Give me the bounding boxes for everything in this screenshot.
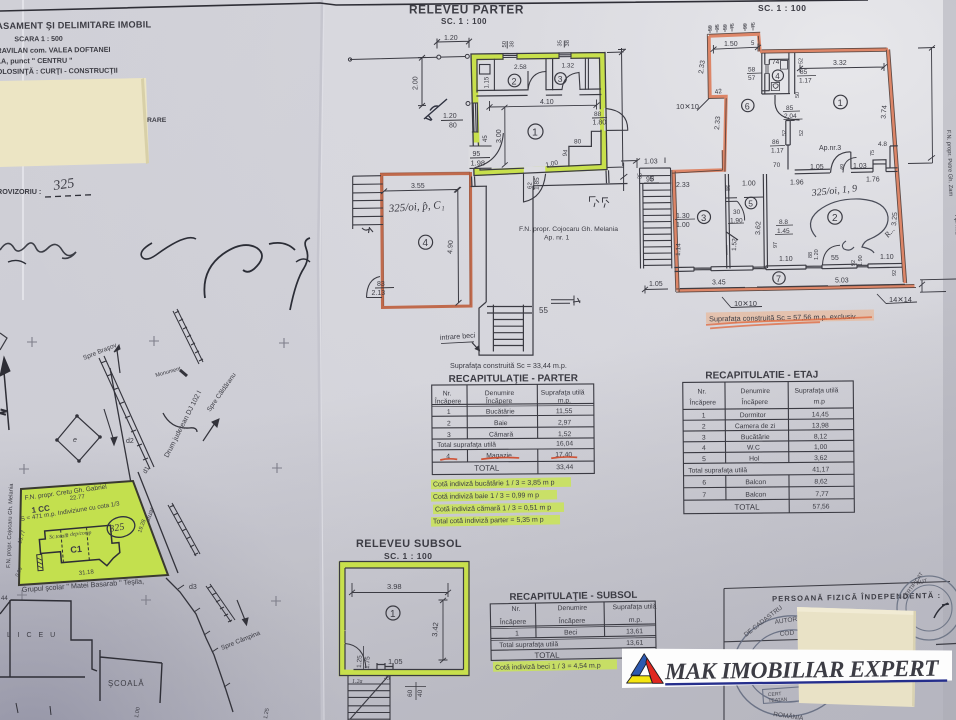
svg-text:1.80: 1.80 bbox=[593, 120, 607, 127]
svg-text:5: 5 bbox=[702, 456, 706, 463]
svg-text:75: 75 bbox=[870, 150, 876, 156]
svg-text:86: 86 bbox=[772, 139, 780, 146]
svg-text:1.32: 1.32 bbox=[562, 63, 575, 70]
svg-text:Suprafaţa utilă: Suprafaţa utilă bbox=[541, 389, 585, 396]
svg-text:16,04: 16,04 bbox=[556, 441, 573, 448]
svg-text:1: 1 bbox=[390, 609, 396, 620]
svg-text:1.10: 1.10 bbox=[779, 256, 793, 263]
svg-text:1: 1 bbox=[532, 127, 538, 139]
svg-text:Dormitor: Dormitor bbox=[740, 412, 767, 419]
svg-text:1: 1 bbox=[838, 98, 843, 109]
svg-text:m.p.: m.p. bbox=[558, 398, 571, 405]
svg-text:Nr.: Nr. bbox=[443, 390, 452, 397]
svg-text:m.p.: m.p. bbox=[629, 617, 642, 624]
svg-text:3,62: 3,62 bbox=[814, 455, 828, 462]
svg-text:m.p: m.p bbox=[814, 398, 826, 405]
svg-text:2,97: 2,97 bbox=[558, 420, 571, 427]
svg-text:10✕10: 10✕10 bbox=[676, 102, 699, 111]
svg-text:3: 3 bbox=[558, 74, 563, 84]
svg-text:ŞCOALĂ: ŞCOALĂ bbox=[108, 679, 144, 688]
svg-text:3.25: 3.25 bbox=[891, 212, 899, 226]
svg-text:1.75: 1.75 bbox=[364, 656, 372, 669]
svg-text:1,00: 1,00 bbox=[814, 444, 828, 451]
svg-text:SC. 1 : 100: SC. 1 : 100 bbox=[384, 551, 433, 561]
svg-text:Balcon: Balcon bbox=[745, 492, 766, 499]
svg-text:1.17: 1.17 bbox=[771, 148, 784, 155]
svg-text:Încăpere: Încăpere bbox=[741, 397, 769, 406]
svg-text:Baie: Baie bbox=[494, 420, 508, 427]
svg-text:2.33: 2.33 bbox=[714, 116, 722, 130]
svg-text:7: 7 bbox=[702, 492, 706, 499]
svg-text:1.15: 1.15 bbox=[485, 76, 491, 88]
svg-text:40: 40 bbox=[417, 689, 424, 697]
svg-text:59: 59 bbox=[723, 24, 729, 30]
svg-text:6: 6 bbox=[745, 101, 750, 111]
svg-text:1.20: 1.20 bbox=[443, 113, 457, 120]
svg-text:80: 80 bbox=[449, 123, 457, 130]
svg-text:3: 3 bbox=[701, 213, 706, 224]
svg-text:1.14: 1.14 bbox=[675, 243, 682, 256]
svg-text:3.45: 3.45 bbox=[712, 280, 726, 287]
svg-text:1: 1 bbox=[515, 630, 519, 637]
svg-text:1.96: 1.96 bbox=[790, 180, 804, 187]
svg-text:35: 35 bbox=[638, 173, 644, 179]
svg-text:TOTAL: TOTAL bbox=[534, 651, 560, 660]
svg-text:Balcon: Balcon bbox=[745, 479, 766, 486]
svg-text:35: 35 bbox=[558, 40, 564, 46]
svg-text:88: 88 bbox=[594, 111, 602, 118]
svg-text:Bucătărie: Bucătărie bbox=[486, 408, 515, 415]
svg-text:SCARA 1 : 500: SCARA 1 : 500 bbox=[14, 36, 63, 44]
svg-text:3.62: 3.62 bbox=[755, 221, 762, 235]
svg-text:RARE: RARE bbox=[147, 117, 167, 124]
svg-text:13,61: 13,61 bbox=[626, 628, 643, 635]
svg-text:2: 2 bbox=[832, 213, 838, 224]
svg-text:14,45: 14,45 bbox=[812, 411, 829, 418]
svg-text:49: 49 bbox=[840, 164, 846, 170]
svg-text:Denumire: Denumire bbox=[740, 388, 770, 395]
svg-text:Hol: Hol bbox=[749, 456, 760, 463]
svg-text:Nr.: Nr. bbox=[697, 389, 706, 396]
svg-text:Ap. nr. 1: Ap. nr. 1 bbox=[544, 235, 570, 242]
svg-text:1,52: 1,52 bbox=[558, 431, 571, 438]
svg-text:2: 2 bbox=[447, 420, 451, 427]
svg-text:1.17: 1.17 bbox=[799, 78, 812, 85]
svg-text:TOTAL: TOTAL bbox=[474, 464, 500, 473]
svg-text:80: 80 bbox=[574, 139, 582, 146]
svg-text:4: 4 bbox=[423, 238, 429, 249]
svg-text:55: 55 bbox=[650, 175, 656, 181]
svg-text:Suprafaţa utilă: Suprafaţa utilă bbox=[613, 603, 657, 611]
svg-text:5: 5 bbox=[748, 199, 753, 209]
svg-text:70: 70 bbox=[773, 162, 781, 169]
svg-text:Încăpere: Încăpere bbox=[485, 396, 513, 405]
svg-text:59: 59 bbox=[708, 25, 714, 31]
svg-text:Încăpere: Încăpere bbox=[689, 397, 717, 406]
svg-text:1.50: 1.50 bbox=[724, 41, 738, 48]
svg-text:1.90: 1.90 bbox=[858, 255, 864, 266]
svg-text:4: 4 bbox=[775, 72, 780, 81]
svg-text:Suprafaţa utilă: Suprafaţa utilă bbox=[794, 387, 838, 394]
svg-text:1.76: 1.76 bbox=[866, 177, 880, 184]
svg-text:1.98: 1.98 bbox=[471, 159, 486, 168]
svg-text:1.20: 1.20 bbox=[814, 249, 820, 260]
svg-text:Încăpere: Încăpere bbox=[434, 396, 462, 405]
svg-text:1.03: 1.03 bbox=[644, 159, 658, 166]
svg-text:55: 55 bbox=[831, 255, 839, 262]
svg-text:Total suprafaţa utilă: Total suprafaţa utilă bbox=[437, 442, 496, 449]
svg-text:30: 30 bbox=[733, 209, 741, 216]
svg-text:57,56: 57,56 bbox=[812, 503, 829, 510]
svg-text:6: 6 bbox=[702, 480, 706, 487]
svg-text:50: 50 bbox=[795, 92, 801, 98]
svg-text:3.00: 3.00 bbox=[496, 129, 503, 143]
svg-text:1.05: 1.05 bbox=[649, 281, 663, 288]
svg-text:Total suprafaţa utilă: Total suprafaţa utilă bbox=[688, 467, 747, 475]
svg-text:Total suprafaţa utilă: Total suprafaţa utilă bbox=[499, 641, 558, 649]
svg-text:3.32: 3.32 bbox=[833, 60, 847, 67]
svg-text:d3: d3 bbox=[189, 584, 197, 591]
svg-text:Beci: Beci bbox=[564, 629, 578, 636]
svg-text:1: 1 bbox=[702, 413, 706, 420]
svg-text:ASAMENT ŞI DELIMITARE IMOBIL: ASAMENT ŞI DELIMITARE IMOBIL bbox=[0, 19, 151, 31]
svg-text:43: 43 bbox=[384, 675, 390, 682]
svg-text:d2: d2 bbox=[126, 438, 134, 445]
svg-text:75: 75 bbox=[751, 22, 757, 28]
svg-text:1.52: 1.52 bbox=[731, 238, 738, 251]
svg-text:25: 25 bbox=[715, 24, 721, 30]
svg-text:Camera de zi: Camera de zi bbox=[735, 423, 776, 430]
svg-text:1.05: 1.05 bbox=[810, 164, 824, 171]
svg-text:Bucătărie: Bucătărie bbox=[741, 434, 770, 441]
svg-text:SC. 1 : 100: SC. 1 : 100 bbox=[441, 17, 487, 26]
svg-text:1.20: 1.20 bbox=[444, 35, 458, 42]
svg-text:1.25: 1.25 bbox=[356, 655, 364, 668]
svg-text:92: 92 bbox=[851, 260, 857, 266]
svg-text:99: 99 bbox=[743, 23, 749, 29]
svg-text:57: 57 bbox=[748, 75, 756, 82]
svg-text:13,98: 13,98 bbox=[812, 422, 829, 429]
svg-text:2: 2 bbox=[702, 424, 706, 431]
svg-text:W.C: W.C bbox=[747, 445, 760, 452]
svg-text:Cămară: Cămară bbox=[489, 431, 513, 438]
svg-text:74: 74 bbox=[772, 59, 780, 66]
svg-text:SC. 1 : 100: SC. 1 : 100 bbox=[758, 3, 807, 13]
svg-text:2.33: 2.33 bbox=[676, 182, 690, 189]
svg-text:1.10: 1.10 bbox=[880, 254, 894, 261]
svg-text:LA, punct " CENTRU ": LA, punct " CENTRU " bbox=[0, 56, 73, 66]
svg-text:RECAPITULATIE - ETAJ: RECAPITULATIE - ETAJ bbox=[705, 370, 818, 382]
svg-text:3.98: 3.98 bbox=[387, 582, 402, 591]
svg-text:85: 85 bbox=[800, 69, 808, 76]
svg-text:4.8: 4.8 bbox=[878, 141, 887, 148]
svg-text:52: 52 bbox=[799, 130, 805, 136]
svg-text:3.42: 3.42 bbox=[430, 622, 440, 637]
svg-text:1.05: 1.05 bbox=[388, 657, 403, 666]
svg-text:3: 3 bbox=[702, 435, 706, 442]
svg-text:Suprafaţa construită Sc = 33: Suprafaţa construită Sc = 33,44 m.p. bbox=[450, 361, 567, 370]
svg-text:45: 45 bbox=[483, 135, 489, 142]
svg-text:83: 83 bbox=[377, 281, 385, 288]
svg-text:38: 38 bbox=[565, 40, 571, 46]
svg-text:RELEVEU SUBSOL: RELEVEU SUBSOL bbox=[356, 538, 462, 550]
svg-text:1.00: 1.00 bbox=[676, 222, 690, 229]
svg-text:2.58: 2.58 bbox=[514, 64, 527, 71]
svg-text:52: 52 bbox=[799, 58, 805, 64]
svg-text:11,55: 11,55 bbox=[556, 408, 573, 415]
svg-text:Ap.nr.3: Ap.nr.3 bbox=[819, 145, 841, 152]
svg-text:55: 55 bbox=[539, 306, 548, 315]
svg-text:41,17: 41,17 bbox=[812, 466, 829, 473]
svg-text:52: 52 bbox=[782, 130, 788, 136]
svg-text:Nr.: Nr. bbox=[512, 606, 521, 613]
svg-text:RECAPITULAŢIE - SUBSOL: RECAPITULAŢIE - SUBSOL bbox=[509, 590, 637, 603]
svg-text:58: 58 bbox=[748, 67, 756, 74]
svg-text:38: 38 bbox=[510, 41, 516, 47]
svg-text:4.90: 4.90 bbox=[447, 240, 455, 254]
svg-text:92: 92 bbox=[892, 270, 898, 276]
svg-text:5.03: 5.03 bbox=[835, 278, 849, 285]
svg-text:75: 75 bbox=[730, 23, 736, 29]
svg-text:2.00: 2.00 bbox=[413, 76, 420, 90]
svg-text:ROVIZORIU :: ROVIZORIU : bbox=[0, 187, 41, 196]
svg-text:7,77: 7,77 bbox=[815, 491, 829, 498]
svg-text:1.00: 1.00 bbox=[742, 181, 756, 188]
svg-text:4: 4 bbox=[702, 445, 706, 452]
svg-text:2: 2 bbox=[512, 76, 517, 86]
svg-text:7: 7 bbox=[776, 274, 781, 284]
svg-text:OLOSINŢĂ : CURŢI - CONSTRUCŢII: OLOSINŢĂ : CURŢI - CONSTRUCŢII bbox=[0, 66, 118, 76]
svg-text:1.85: 1.85 bbox=[534, 177, 541, 190]
svg-text:3: 3 bbox=[447, 432, 451, 439]
svg-text:44: 44 bbox=[1, 596, 8, 602]
svg-text:13,61: 13,61 bbox=[626, 640, 643, 647]
svg-text:86: 86 bbox=[726, 185, 732, 191]
svg-text:1.03: 1.03 bbox=[853, 163, 867, 170]
svg-text:RELEVEU PARTER: RELEVEU PARTER bbox=[409, 3, 524, 17]
svg-text:42: 42 bbox=[714, 88, 723, 96]
svg-text:L I C E U: L I C E U bbox=[7, 632, 58, 639]
svg-text:e: e bbox=[73, 437, 77, 444]
svg-text:3.74: 3.74 bbox=[881, 105, 889, 119]
svg-text:8,62: 8,62 bbox=[814, 478, 828, 485]
svg-text:Denumire: Denumire bbox=[558, 605, 588, 613]
svg-text:60: 60 bbox=[407, 689, 414, 697]
svg-text:RAVILAN com. VALEA DOFTANEI: RAVILAN com. VALEA DOFTANEI bbox=[0, 45, 111, 55]
svg-text:2.13: 2.13 bbox=[372, 290, 386, 297]
svg-text:325: 325 bbox=[51, 176, 75, 194]
svg-text:33,44: 33,44 bbox=[556, 464, 573, 471]
svg-text:RECAPITULAŢIE - PARTER: RECAPITULAŢIE - PARTER bbox=[449, 373, 579, 385]
svg-text:1: 1 bbox=[447, 409, 451, 416]
svg-text:8,12: 8,12 bbox=[814, 433, 828, 440]
svg-text:97: 97 bbox=[773, 242, 779, 248]
svg-text:4.10: 4.10 bbox=[540, 99, 554, 106]
svg-text:3.55: 3.55 bbox=[411, 183, 425, 190]
svg-text:C1: C1 bbox=[70, 544, 82, 555]
svg-text:TOTAL: TOTAL bbox=[734, 503, 760, 512]
svg-text:F.N. propr. Cojocaru Gh. M: F.N. propr. Cojocaru Gh. Melania bbox=[519, 226, 618, 233]
svg-text:Denumire: Denumire bbox=[485, 390, 515, 397]
svg-text:95: 95 bbox=[473, 151, 481, 158]
